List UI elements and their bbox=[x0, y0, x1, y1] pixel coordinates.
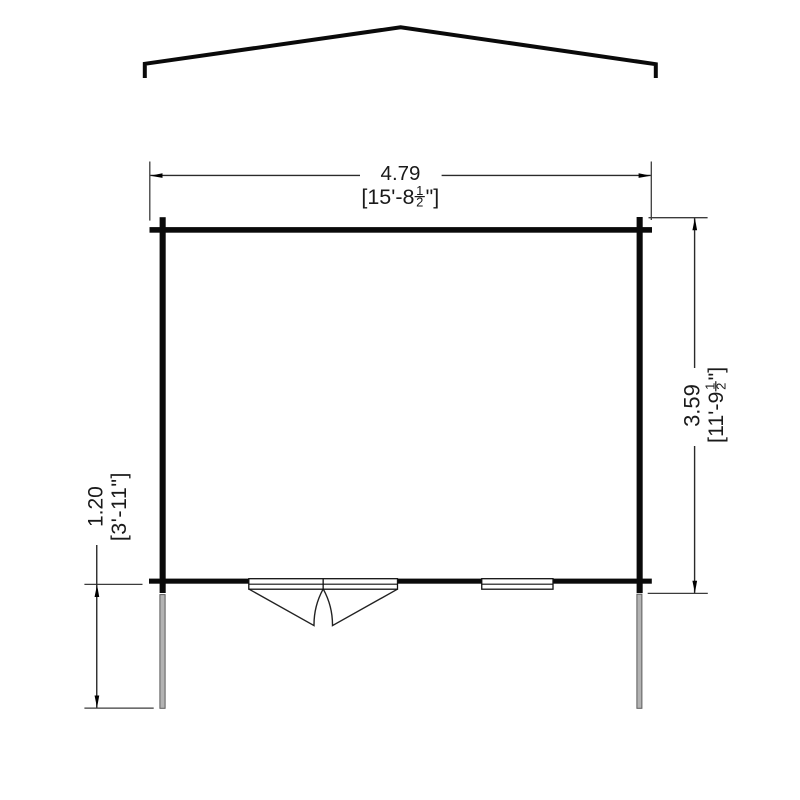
svg-text:4.79: 4.79 bbox=[381, 162, 421, 185]
svg-text:2: 2 bbox=[714, 383, 729, 390]
svg-text:3.59: 3.59 bbox=[679, 384, 704, 427]
svg-text:1.20: 1.20 bbox=[85, 486, 108, 527]
svg-text:"]: "] bbox=[704, 367, 728, 381]
svg-text:[15'-8: [15'-8 bbox=[361, 185, 414, 209]
svg-text:2: 2 bbox=[416, 194, 423, 209]
svg-text:[3'-11"]: [3'-11"] bbox=[107, 472, 131, 541]
svg-text:"]: "] bbox=[426, 185, 440, 209]
svg-text:[11'-9: [11'-9 bbox=[704, 392, 728, 444]
